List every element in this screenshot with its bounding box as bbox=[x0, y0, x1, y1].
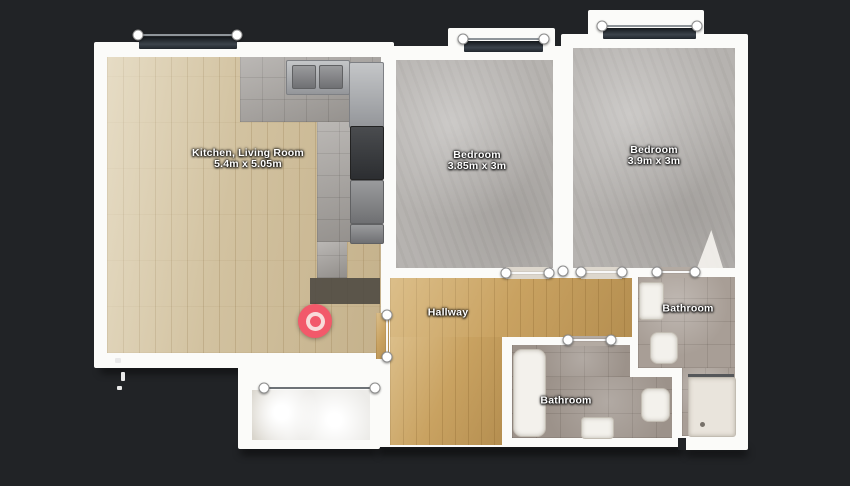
window-line bbox=[138, 34, 237, 36]
wall-node-icon bbox=[370, 383, 381, 394]
wall-node-icon bbox=[539, 34, 550, 45]
wall-node-icon bbox=[576, 267, 587, 278]
room-name: Hallway bbox=[428, 308, 469, 319]
room-label-bathroom-main: Bathroom bbox=[540, 396, 591, 407]
wall-node-icon bbox=[692, 21, 703, 32]
plan-shadow bbox=[686, 449, 748, 456]
wall-node-icon bbox=[690, 267, 701, 278]
shower-tray bbox=[688, 377, 736, 437]
kitchen-sink-basin bbox=[292, 65, 316, 89]
wall-notch bbox=[678, 438, 686, 450]
wall-node-icon bbox=[232, 30, 243, 41]
scan-artifact bbox=[121, 372, 125, 381]
room-label-hallway: Hallway bbox=[428, 308, 469, 319]
wall-node-icon bbox=[458, 34, 469, 45]
bathtub bbox=[513, 349, 546, 437]
window-glass bbox=[464, 41, 543, 52]
room-label-kitchen-living: Kitchen, Living Room 5.4m x 5.05m bbox=[192, 148, 304, 170]
shower-glass bbox=[688, 374, 734, 377]
wall-node-icon bbox=[558, 266, 569, 277]
wall-node-icon bbox=[382, 352, 393, 363]
room-dimensions: 3.9m x 3m bbox=[628, 156, 681, 167]
wall-node-icon bbox=[501, 268, 512, 279]
room-dimensions: 3.85m x 3m bbox=[448, 161, 507, 172]
room-label-bedroom-1: Bedroom 3.85m x 3m bbox=[448, 150, 507, 172]
toilet bbox=[650, 332, 678, 364]
wall-node-icon bbox=[597, 21, 608, 32]
room-hallway[interactable] bbox=[390, 337, 502, 445]
capture-point-marker[interactable] bbox=[298, 304, 332, 338]
sink bbox=[639, 282, 664, 320]
kitchen-sink-basin bbox=[319, 65, 343, 89]
plan-shadow bbox=[378, 446, 684, 455]
room-label-bathroom-ensuite: Bathroom bbox=[662, 304, 713, 315]
window-glass bbox=[139, 37, 237, 49]
kitchen-cabinet bbox=[350, 224, 384, 244]
toilet bbox=[641, 388, 670, 422]
window-glass bbox=[603, 28, 696, 39]
wall-node-icon bbox=[259, 383, 270, 394]
room-hallway[interactable] bbox=[390, 278, 632, 337]
door-bathroom-main bbox=[568, 336, 611, 346]
window-line bbox=[602, 25, 697, 27]
room-name: Bathroom bbox=[662, 304, 713, 315]
wall-node-icon bbox=[544, 268, 555, 279]
doorway-shadow bbox=[310, 278, 380, 304]
room-label-bedroom-2: Bedroom 3.9m x 3m bbox=[628, 145, 681, 167]
sink bbox=[581, 417, 614, 439]
wall-node-icon bbox=[563, 335, 574, 346]
window-line bbox=[463, 38, 544, 40]
wall-node-icon bbox=[617, 267, 628, 278]
scan-artifact bbox=[115, 358, 121, 363]
kitchen-counter bbox=[349, 62, 384, 128]
wall-node-icon bbox=[652, 267, 663, 278]
room-dimensions: 5.4m x 5.05m bbox=[192, 159, 304, 170]
scan-artifact bbox=[117, 386, 122, 390]
window-line bbox=[264, 387, 375, 389]
capture-point-dot bbox=[310, 316, 321, 327]
shower-drain bbox=[700, 422, 705, 427]
kitchen-oven bbox=[350, 126, 384, 180]
floorplan-canvas: Kitchen, Living Room 5.4m x 5.05m Bedroo… bbox=[0, 0, 850, 486]
kitchen-fridge bbox=[350, 180, 384, 224]
wall-node-icon bbox=[606, 335, 617, 346]
wall-node-icon bbox=[133, 30, 144, 41]
kitchen-floor[interactable] bbox=[317, 242, 347, 278]
bay-window-floor[interactable] bbox=[252, 390, 370, 440]
capture-point-ring bbox=[306, 312, 325, 331]
room-name: Bathroom bbox=[540, 396, 591, 407]
wall-node-icon bbox=[382, 310, 393, 321]
